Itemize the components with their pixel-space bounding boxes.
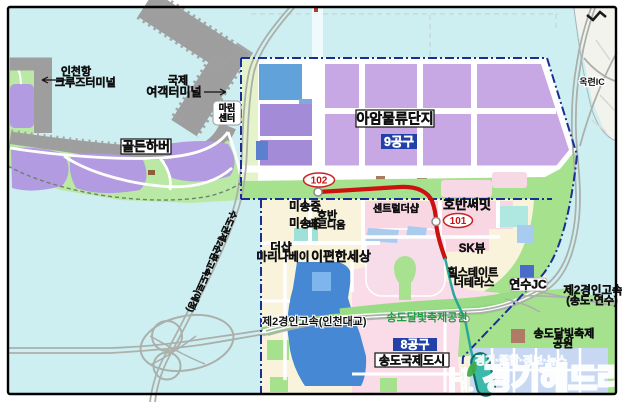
svg-text:공원: 공원 xyxy=(553,336,573,350)
svg-text:센터: 센터 xyxy=(219,112,236,123)
svg-text:아암물류단지: 아암물류단지 xyxy=(356,111,433,127)
svg-text:옥련IC: 옥련IC xyxy=(579,77,605,87)
svg-text:8공구: 8공구 xyxy=(401,338,430,352)
svg-text:베르디움: 베르디움 xyxy=(309,219,346,232)
svg-text:더테라스: 더테라스 xyxy=(454,275,494,289)
svg-text:SK뷰: SK뷰 xyxy=(459,242,486,255)
svg-text:송도달빛축제공원: 송도달빛축제공원 xyxy=(387,310,468,324)
svg-text:연수JC: 연수JC xyxy=(509,277,547,292)
svg-text:송도국제도시: 송도국제도시 xyxy=(379,354,445,368)
svg-text:경기헤드라인: 경기헤드라인 xyxy=(483,362,622,397)
svg-text:9공구: 9공구 xyxy=(384,135,414,149)
svg-text:101: 101 xyxy=(450,216,467,227)
svg-text:마리나베이: 마리나베이 xyxy=(257,250,310,264)
svg-text:센트럴더샵: 센트럴더샵 xyxy=(373,202,420,215)
svg-text:여객터미널: 여객터미널 xyxy=(146,84,201,99)
svg-text:마린: 마린 xyxy=(219,102,236,113)
svg-text:이편한세상: 이편한세상 xyxy=(311,249,371,264)
svg-text:102: 102 xyxy=(311,176,328,187)
svg-text:호반써밋: 호반써밋 xyxy=(443,197,491,212)
svg-text:제2경인고속(인천대교): 제2경인고속(인천대교) xyxy=(262,314,367,328)
svg-text:인천항: 인천항 xyxy=(61,64,91,78)
svg-text:(송도·연수): (송도·연수) xyxy=(566,293,618,307)
svg-text:골든하버: 골든하버 xyxy=(122,139,170,154)
svg-text:크루즈터미널: 크루즈터미널 xyxy=(55,75,116,89)
